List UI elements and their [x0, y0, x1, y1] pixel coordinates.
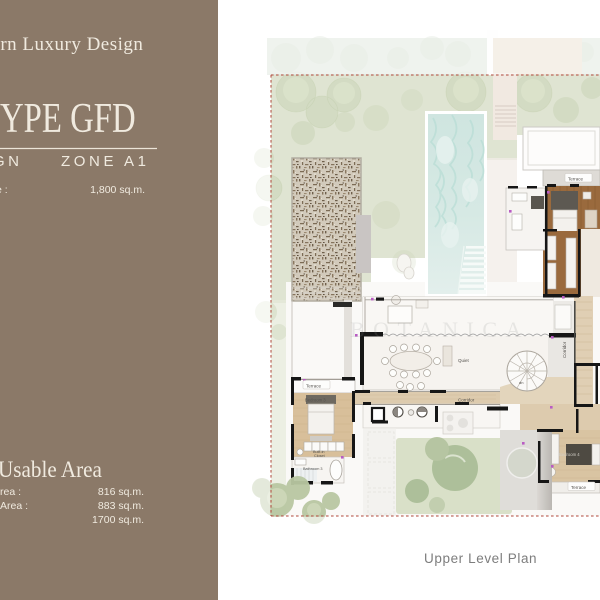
svg-text:BOTANICA: BOTANICA — [350, 317, 530, 342]
svg-text:816 sq.m.: 816 sq.m. — [98, 486, 144, 498]
svg-text:Upper Level Plan: Upper Level Plan — [424, 551, 537, 566]
svg-text:Corridor: Corridor — [562, 341, 567, 358]
svg-text:Modern Luxury Design: Modern Luxury Design — [0, 34, 143, 55]
svg-text:Closet: Closet — [314, 454, 326, 458]
svg-text:Terrace: Terrace — [571, 485, 587, 490]
svg-text:Bathroom 3: Bathroom 3 — [303, 467, 322, 471]
svg-text:Terrace: Terrace — [568, 177, 584, 182]
svg-text:Usable Area: Usable Area — [0, 456, 102, 482]
svg-text:DESIGN: DESIGN — [0, 153, 23, 170]
svg-text:Bedroom 3: Bedroom 3 — [305, 398, 326, 403]
svg-text:TYPE GFD: TYPE GFD — [0, 95, 136, 142]
svg-text:rea :: rea : — [0, 486, 21, 498]
svg-text:Terrace: Terrace — [306, 384, 322, 389]
svg-text:Corridor: Corridor — [458, 398, 475, 403]
svg-text:1,800 sq.m.: 1,800 sq.m. — [90, 184, 145, 196]
svg-text:Bedroom 4: Bedroom 4 — [559, 452, 580, 457]
svg-text:883 sq.m.: 883 sq.m. — [98, 500, 144, 512]
svg-text:e :: e : — [0, 184, 8, 196]
svg-text:Built-in: Built-in — [313, 450, 325, 454]
svg-text:dn: dn — [519, 380, 524, 385]
svg-text:1700 sq.m.: 1700 sq.m. — [92, 514, 144, 526]
svg-text:Quiet: Quiet — [458, 358, 470, 363]
svg-text:ZONE A1: ZONE A1 — [61, 153, 150, 170]
svg-text:Area :: Area : — [0, 500, 28, 512]
